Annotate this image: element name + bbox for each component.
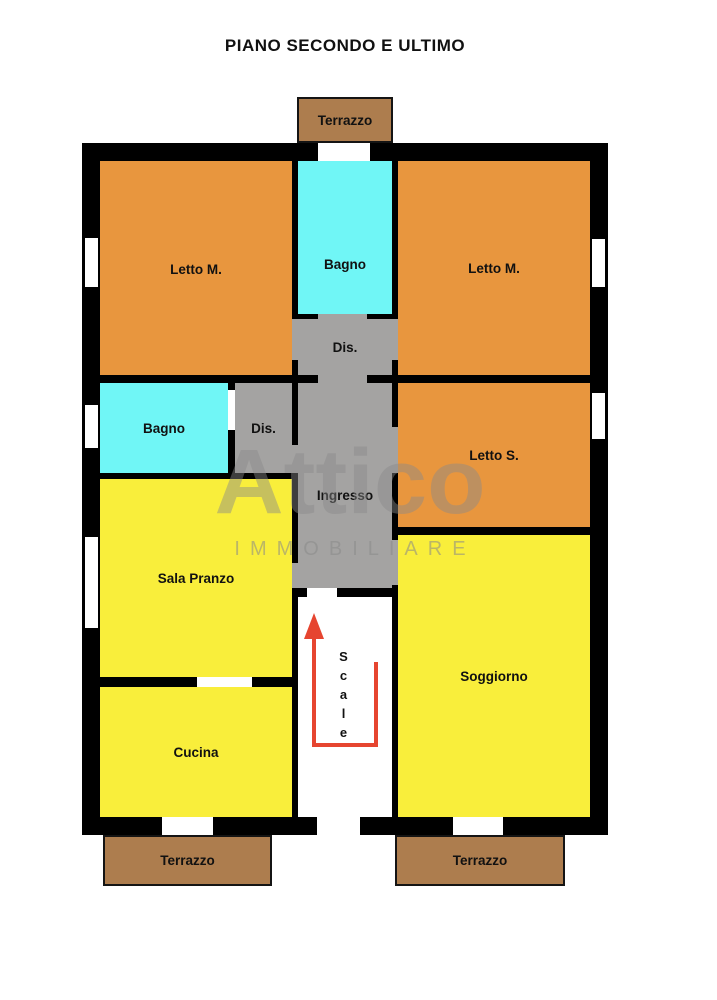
window (83, 535, 100, 630)
door-opening (317, 817, 360, 835)
room-label-scale: Scale (336, 649, 351, 744)
wall (392, 161, 398, 318)
room-label: Letto M. (468, 261, 520, 276)
room-label: Terrazzo (453, 853, 508, 868)
room-label: Bagno (143, 421, 185, 436)
page-title: PIANO SECONDO E ULTIMO (82, 36, 608, 56)
door-opening (292, 318, 298, 360)
room-label: Dis. (333, 340, 358, 355)
door-opening (162, 817, 213, 835)
room-label: Terrazzo (318, 113, 373, 128)
wall (292, 588, 307, 597)
wall (392, 585, 398, 817)
window (590, 237, 607, 289)
stairs-arrow-line (374, 662, 378, 747)
room-label: Cucina (173, 745, 218, 760)
room-dis-top: Dis. (298, 319, 392, 375)
room-label: Bagno (324, 257, 366, 272)
door-opening (292, 563, 298, 588)
stairs-arrow-line (312, 638, 316, 747)
room-label: Soggiorno (460, 669, 528, 684)
wall (337, 588, 398, 597)
wall (100, 375, 292, 383)
stairs-arrow-head (304, 613, 324, 639)
wall (228, 383, 235, 390)
watermark-logo: Attico (163, 436, 537, 528)
window (83, 236, 100, 289)
window (590, 391, 607, 441)
room-label: Sala Pranzo (158, 571, 235, 586)
room-letto-m-left: Letto M. (100, 161, 292, 378)
room-terrazzo-bottom-right: Terrazzo (395, 835, 565, 886)
wall (292, 314, 318, 319)
wall (392, 360, 398, 427)
wall (292, 161, 298, 318)
room-terrazzo-bottom-left: Terrazzo (103, 835, 272, 886)
door-opening (453, 817, 503, 835)
wall (292, 597, 298, 817)
window (83, 403, 100, 450)
floor-plan: PIANO SECONDO E ULTIMO Terrazzo Terrazzo… (0, 0, 717, 1000)
watermark-subtitle: IMMOBILIARE (190, 538, 520, 561)
wall (398, 375, 590, 383)
door-opening (318, 143, 370, 161)
wall (292, 375, 318, 383)
door-opening (392, 318, 398, 360)
wall (100, 677, 197, 687)
wall (367, 375, 398, 383)
wall (252, 677, 292, 687)
wall (367, 314, 398, 319)
room-label: Letto M. (170, 262, 222, 277)
room-letto-m-right: Letto M. (398, 161, 590, 375)
room-bagno-top: Bagno (298, 161, 392, 314)
room-cucina: Cucina (100, 687, 292, 817)
room-terrazzo-top: Terrazzo (297, 97, 393, 143)
room-soggiorno: Soggiorno (398, 535, 590, 817)
room-label: Terrazzo (160, 853, 215, 868)
